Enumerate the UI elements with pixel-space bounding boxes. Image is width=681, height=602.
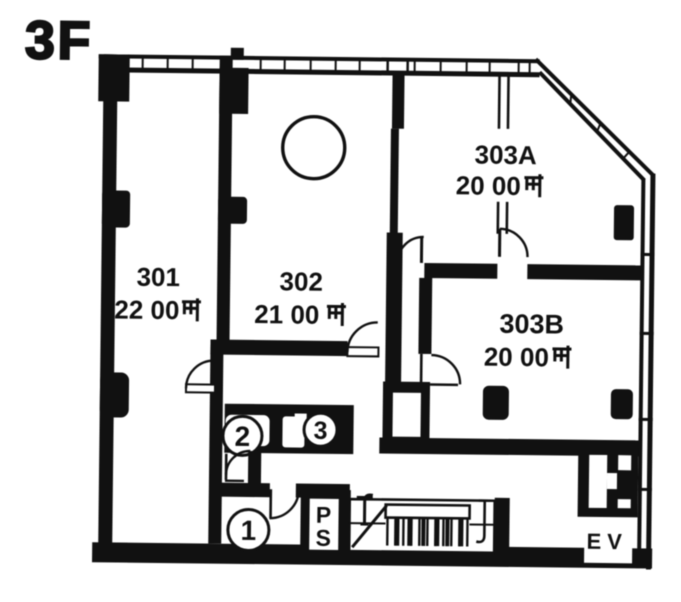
svg-text:2: 2 [234,421,250,452]
svg-text:303A: 303A [474,140,537,171]
svg-text:301: 301 [136,262,180,292]
svg-text:S: S [315,525,331,551]
svg-text:3: 3 [313,417,327,445]
svg-text:21 00: 21 00 [254,299,319,330]
svg-text:1: 1 [240,515,256,546]
svg-text:3F: 3F [25,10,94,71]
svg-text:303B: 303B [499,309,564,340]
svg-text:302: 302 [279,266,323,296]
svg-text:22 00: 22 00 [114,294,179,325]
svg-text:EV: EV [586,529,628,554]
svg-text:20 00: 20 00 [484,342,549,373]
svg-text:20 00: 20 00 [456,170,521,201]
